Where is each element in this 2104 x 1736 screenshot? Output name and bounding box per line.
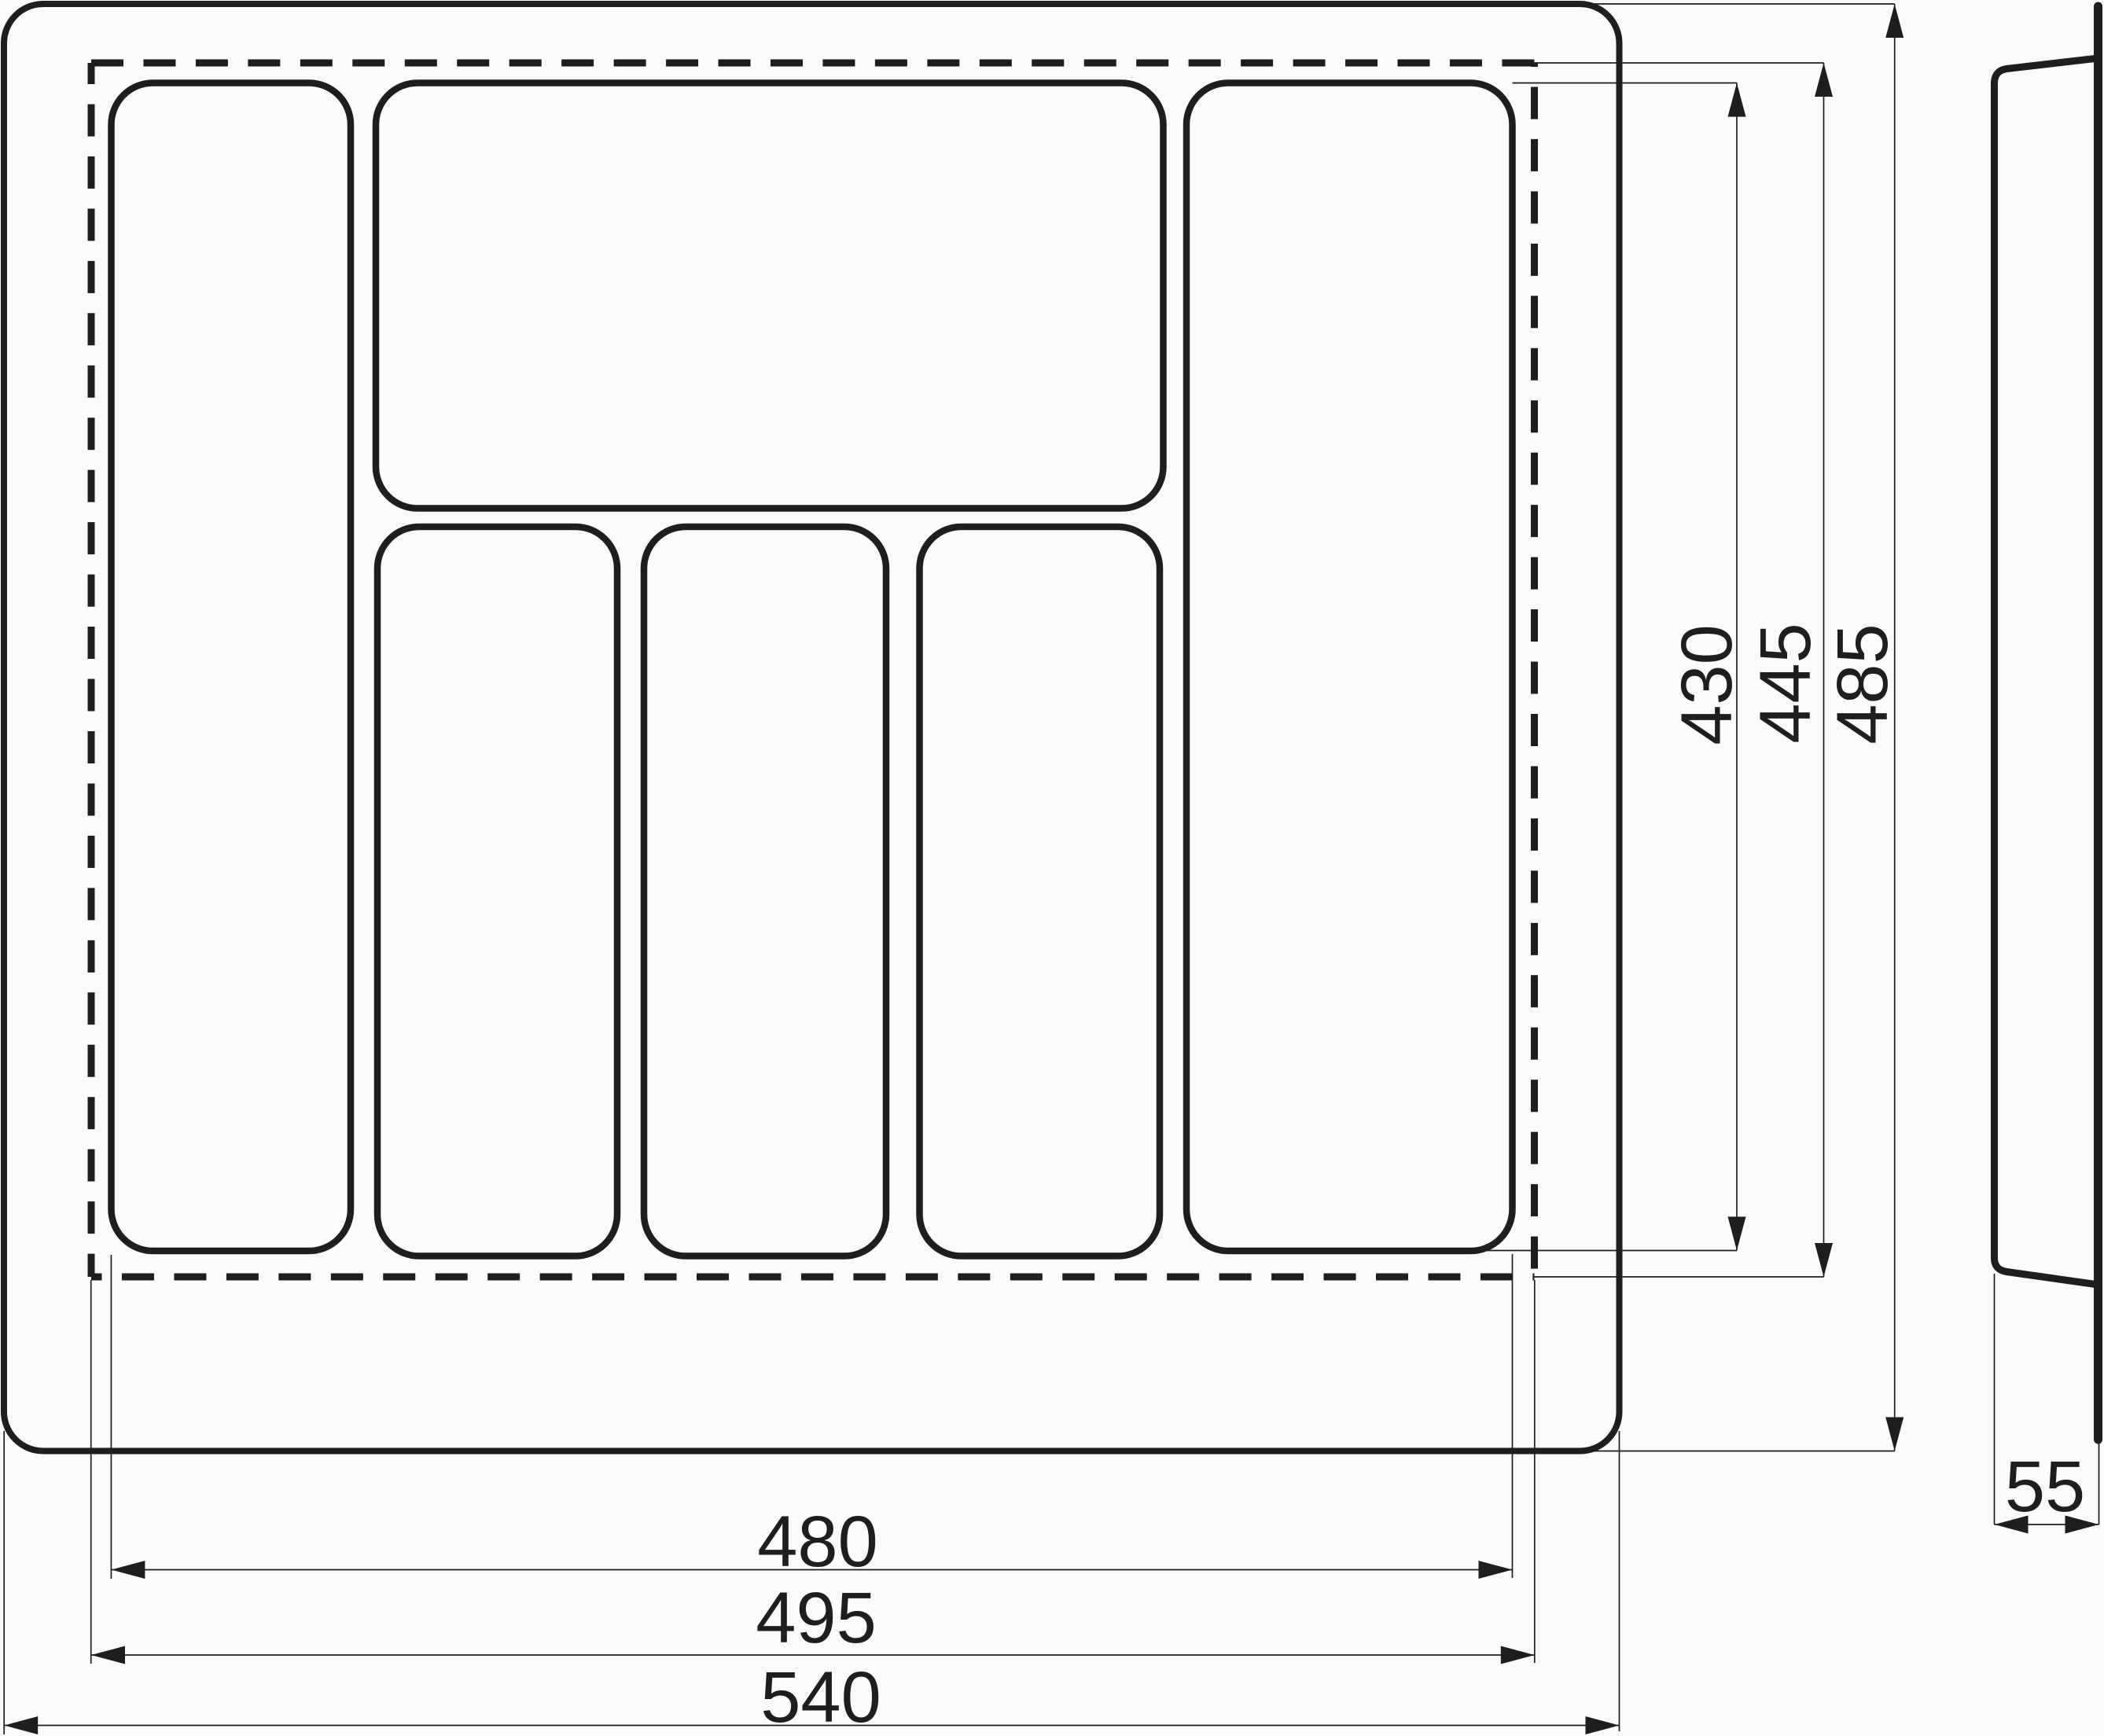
svg-text:495: 495 <box>756 1578 877 1658</box>
svg-text:480: 480 <box>757 1502 878 1582</box>
svg-text:540: 540 <box>760 1657 881 1736</box>
svg-text:485: 485 <box>1823 623 1903 745</box>
svg-text:445: 445 <box>1745 623 1826 744</box>
svg-text:55: 55 <box>2005 1447 2085 1527</box>
svg-text:430: 430 <box>1667 624 1747 745</box>
